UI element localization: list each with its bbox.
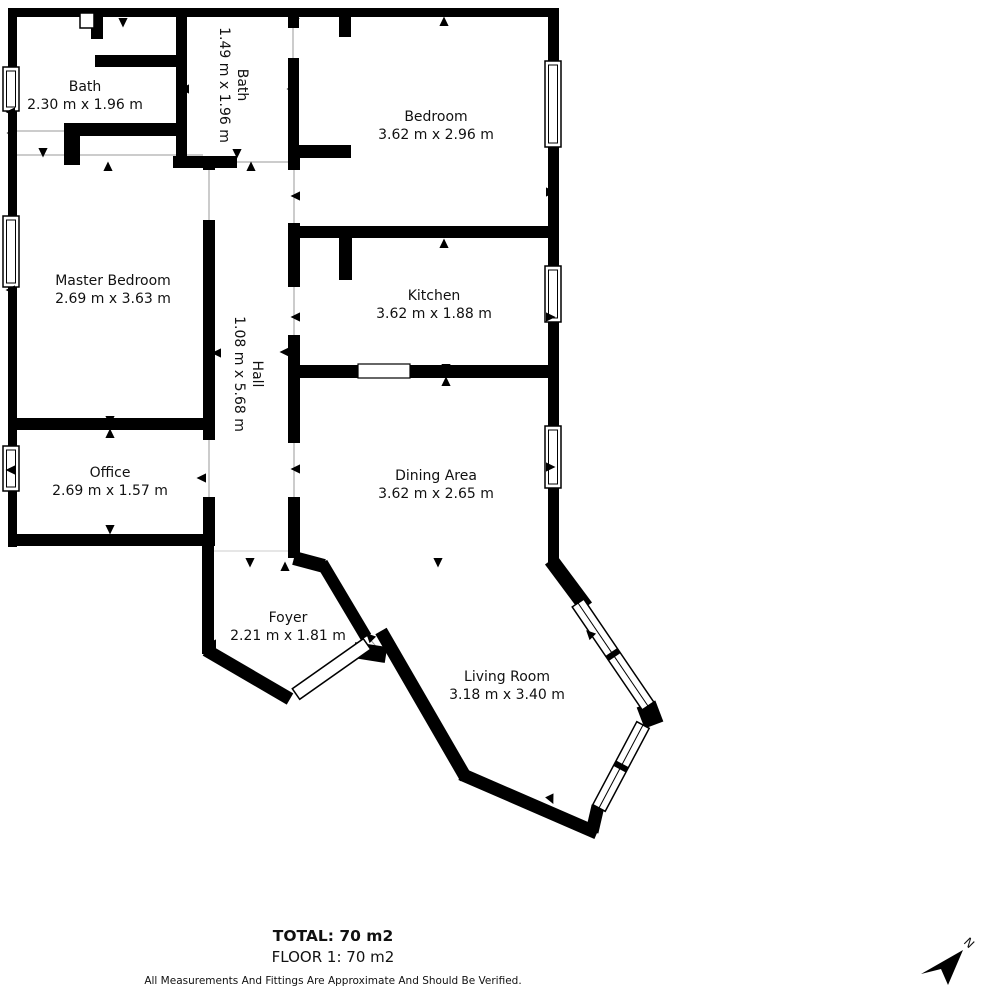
room-label-dining-area: Dining Area 3.62 m x 2.65 m xyxy=(378,468,494,502)
room-label-office: Office 2.69 m x 1.57 m xyxy=(52,465,168,499)
diagonal-walls xyxy=(206,558,654,833)
kitchen-pass-through xyxy=(358,364,410,378)
room-label-bath-1: Bath 2.30 m x 1.96 m xyxy=(27,79,143,113)
window-master-bedroom xyxy=(3,216,19,287)
room-name: Hall xyxy=(249,361,265,388)
window-bath-1 xyxy=(3,67,19,111)
door-arrow xyxy=(291,191,301,200)
door-arrow xyxy=(280,562,289,572)
opening-lines xyxy=(17,28,379,650)
footer-floor: FLOOR 1: 70 m2 xyxy=(272,948,395,966)
footer-disclaimer: All Measurements And Fittings Are Approx… xyxy=(144,975,521,987)
wall-segment xyxy=(339,17,351,37)
footer-total: TOTAL: 70 m2 xyxy=(273,927,394,945)
wall-segment xyxy=(203,158,215,170)
door-arrow xyxy=(246,162,255,172)
room-dims: 3.62 m x 2.96 m xyxy=(378,127,494,143)
wall-segment xyxy=(461,774,597,833)
room-dims: 2.21 m x 1.81 m xyxy=(230,628,346,644)
wall-segment xyxy=(291,145,351,158)
wall-segment xyxy=(288,226,559,238)
wall-segment xyxy=(339,238,352,280)
wall-segment xyxy=(381,631,466,778)
compass-arrow-icon xyxy=(921,950,963,985)
wall-segment xyxy=(300,365,358,378)
door-arrow xyxy=(197,473,207,482)
wall-segment xyxy=(64,123,80,165)
room-dims: 2.69 m x 3.63 m xyxy=(55,291,171,307)
bay-window-lower xyxy=(593,722,649,812)
room-label-bath-2: Bath 1.49 m x 1.96 m xyxy=(216,27,250,143)
room-dims: 1.08 m x 5.68 m xyxy=(231,316,247,432)
floorplan-svg: Bath 2.30 m x 1.96 m Bath 1.49 m x 1.96 … xyxy=(0,0,984,992)
door-arrow xyxy=(280,347,290,356)
room-dims: 1.49 m x 1.96 m xyxy=(216,27,232,143)
room-name: Office xyxy=(90,465,131,481)
wall-segment xyxy=(288,335,300,443)
door-arrow xyxy=(291,464,301,473)
wall-segment xyxy=(322,563,366,637)
door-arrow xyxy=(433,558,442,568)
room-dims: 2.69 m x 1.57 m xyxy=(52,483,168,499)
room-name: Master Bedroom xyxy=(55,273,171,289)
room-label-bedroom: Bedroom 3.62 m x 2.96 m xyxy=(378,109,494,143)
wall-segment xyxy=(551,560,586,607)
bath-door-panel xyxy=(80,13,94,28)
room-name: Kitchen xyxy=(408,288,461,304)
door-arrow xyxy=(245,558,254,568)
compass-north-label: N xyxy=(961,935,977,951)
room-name: Dining Area xyxy=(395,468,477,484)
door-arrow xyxy=(38,148,47,158)
door-arrow xyxy=(439,17,448,27)
wall-segment xyxy=(202,546,214,654)
door-arrow xyxy=(105,525,114,535)
room-name: Living Room xyxy=(464,669,550,685)
door-arrow xyxy=(439,239,448,249)
door-arrow xyxy=(118,18,127,28)
room-name: Bath xyxy=(234,69,250,102)
room-dims: 2.30 m x 1.96 m xyxy=(27,97,143,113)
room-name: Bath xyxy=(69,79,102,95)
wall-segment xyxy=(8,534,214,546)
room-label-living-room: Living Room 3.18 m x 3.40 m xyxy=(449,669,565,703)
window-dining-area xyxy=(545,426,561,488)
wall-segment xyxy=(64,123,178,136)
room-dims: 3.18 m x 3.40 m xyxy=(449,687,565,703)
wall-segment xyxy=(206,650,290,699)
wall-segment xyxy=(288,58,299,156)
wall-segment xyxy=(203,220,215,440)
wall-segment xyxy=(288,497,300,558)
floorplan-page: Bath 2.30 m x 1.96 m Bath 1.49 m x 1.96 … xyxy=(0,0,984,992)
wall-segment xyxy=(592,806,598,832)
room-name: Foyer xyxy=(269,610,308,626)
room-dims: 3.62 m x 2.65 m xyxy=(378,486,494,502)
wall-segment xyxy=(95,55,178,67)
room-label-kitchen: Kitchen 3.62 m x 1.88 m xyxy=(376,288,492,322)
room-label-hall: Hall 1.08 m x 5.68 m xyxy=(231,316,265,432)
entrance-door xyxy=(292,639,370,700)
room-name: Bedroom xyxy=(404,109,467,125)
wall-segment xyxy=(288,156,300,170)
room-label-foyer: Foyer 2.21 m x 1.81 m xyxy=(230,610,346,644)
bay-windows xyxy=(572,599,654,811)
door-arrow xyxy=(545,793,557,805)
compass: N xyxy=(921,935,977,985)
wall-segment xyxy=(410,365,559,378)
door-arrow xyxy=(103,162,112,172)
room-label-master-bedroom: Master Bedroom 2.69 m x 3.63 m xyxy=(55,273,171,307)
room-dims: 3.62 m x 1.88 m xyxy=(376,306,492,322)
window-bedroom xyxy=(545,61,561,147)
footer: TOTAL: 70 m2 FLOOR 1: 70 m2 All Measurem… xyxy=(144,927,521,987)
wall-segment xyxy=(203,497,215,546)
bay-window-upper xyxy=(572,599,654,710)
door-arrow xyxy=(291,312,301,321)
